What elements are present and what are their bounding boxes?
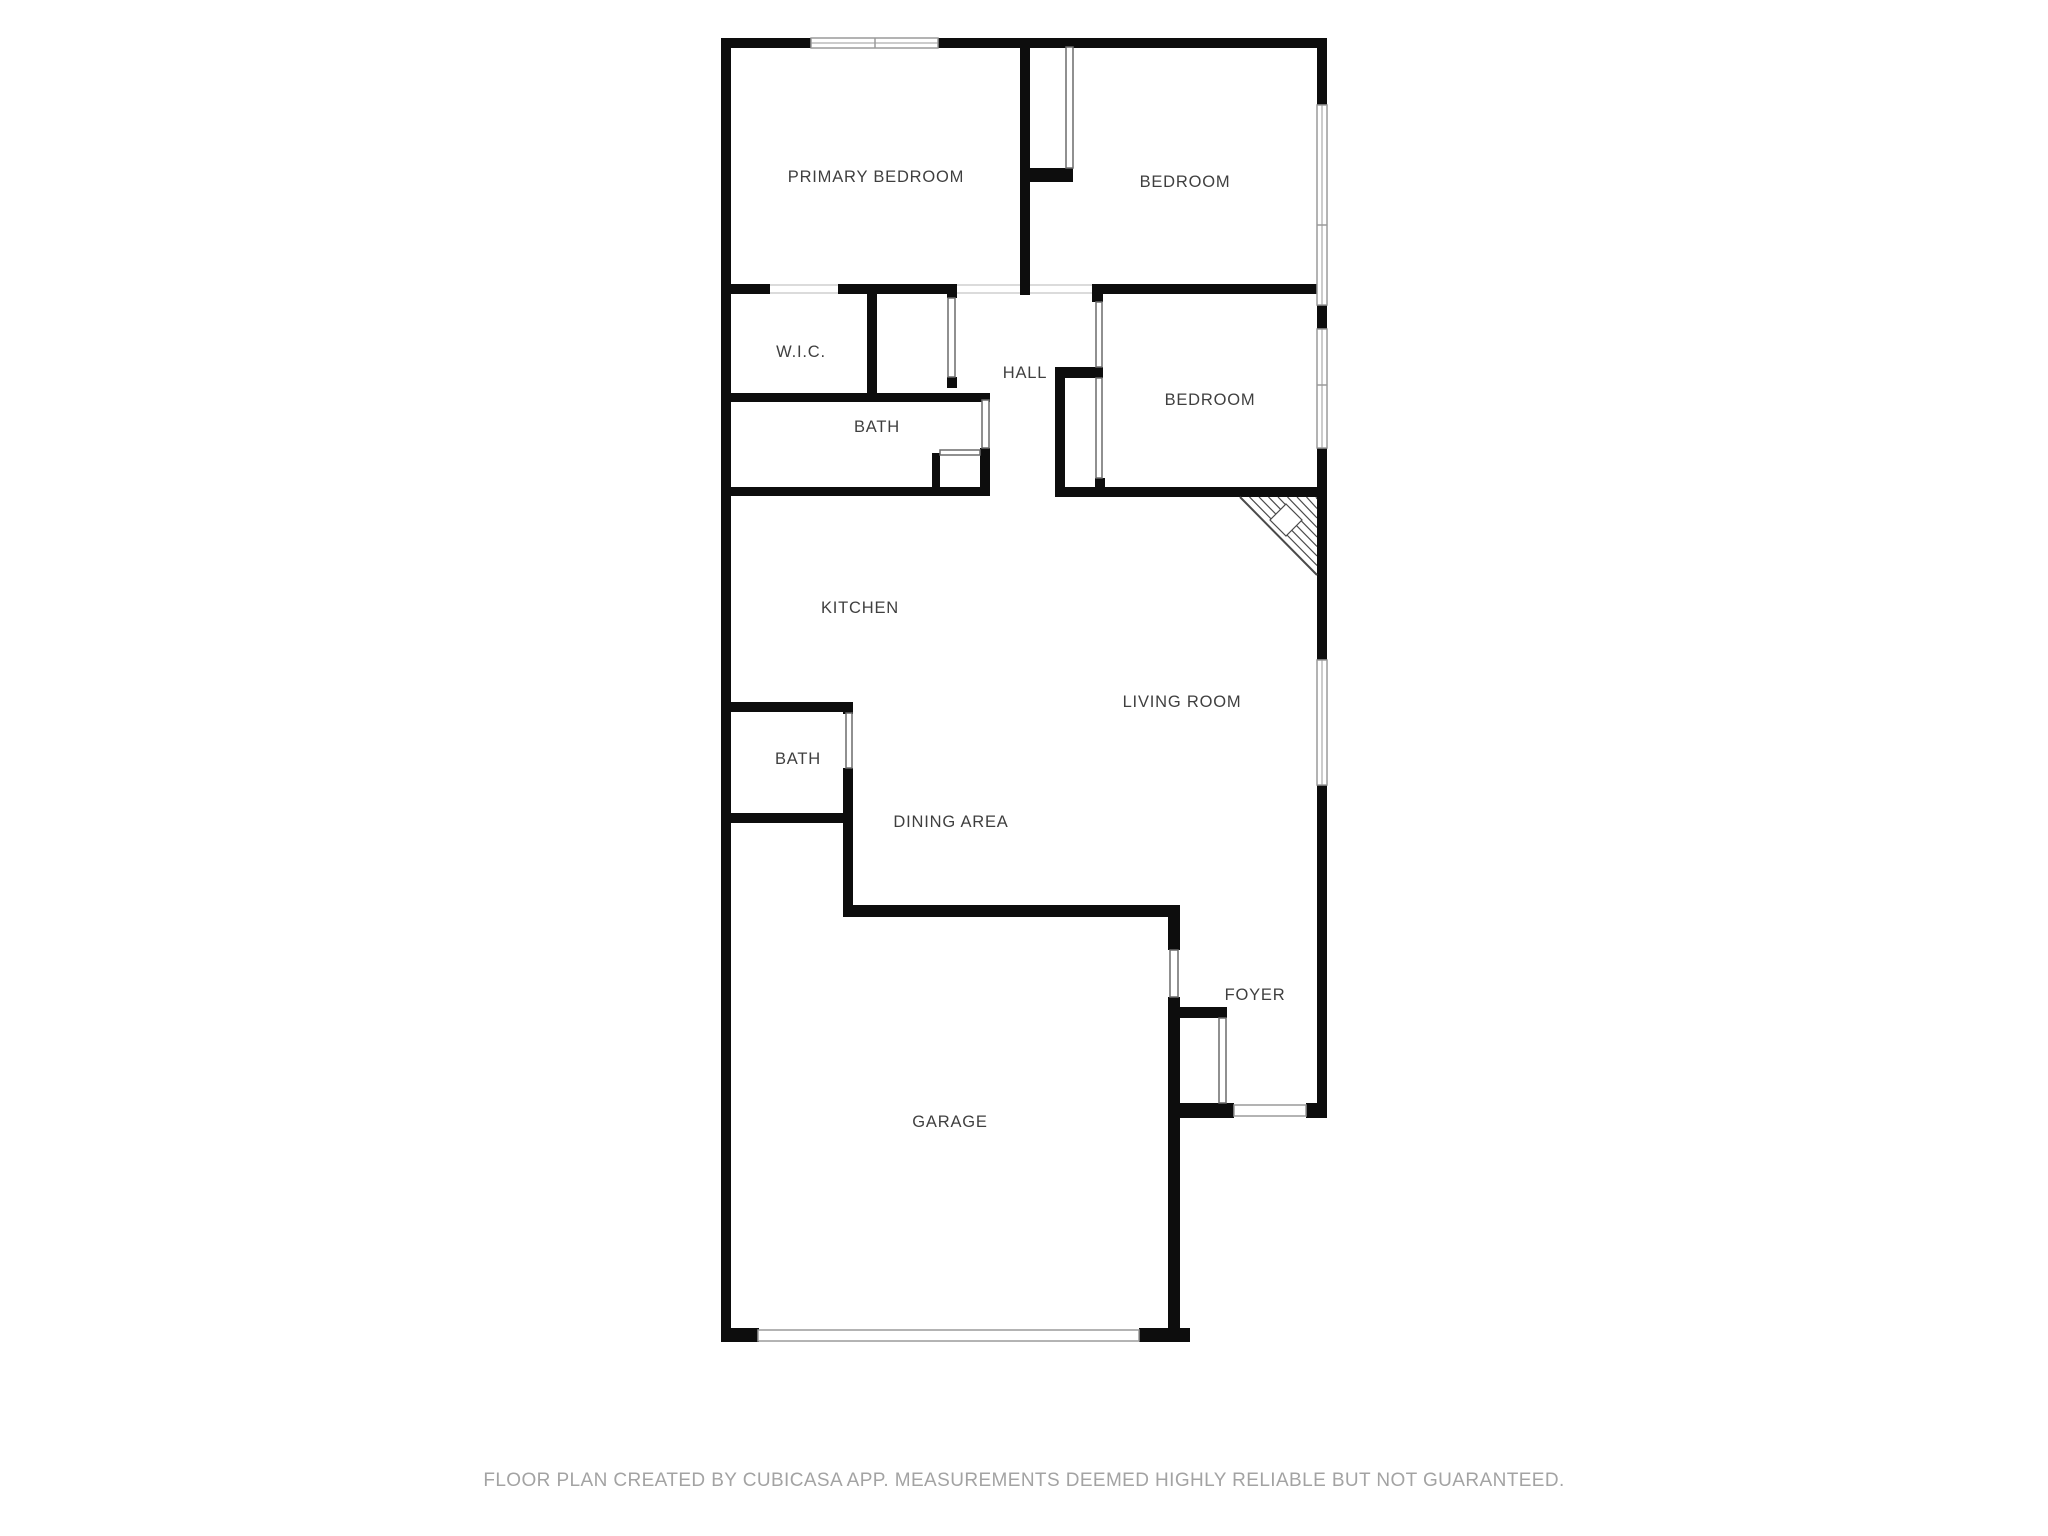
room-label-bath-lower: BATH: [775, 750, 821, 768]
room-label-foyer: FOYER: [1225, 986, 1286, 1004]
wall: [1055, 367, 1065, 497]
wall: [1317, 785, 1327, 1118]
door-leaf: [940, 450, 980, 455]
wall: [947, 377, 957, 388]
wall: [1180, 1007, 1227, 1018]
wall: [1093, 367, 1103, 378]
wall: [1139, 1328, 1190, 1342]
room-label-living-room: LIVING ROOM: [1123, 693, 1242, 711]
wall: [721, 38, 731, 1342]
room-label-wic: W.I.C.: [776, 343, 826, 361]
wall: [1092, 284, 1327, 294]
front-door: [1234, 1105, 1306, 1116]
room-label-garage: GARAGE: [912, 1113, 987, 1131]
room-label-primary-bedroom: PRIMARY BEDROOM: [788, 168, 964, 186]
wall: [932, 453, 940, 495]
wall: [721, 1328, 759, 1342]
wall: [1317, 38, 1327, 108]
wall: [721, 393, 990, 402]
door-leaf: [948, 298, 955, 377]
hatch-line: [1297, 497, 1317, 518]
wall: [1055, 487, 1327, 497]
wall: [1020, 168, 1073, 182]
wall: [1168, 997, 1180, 1342]
wall: [838, 284, 947, 294]
wall: [1306, 1103, 1327, 1118]
hatch-line: [1316, 497, 1317, 499]
wall: [867, 294, 877, 400]
footer-disclaimer: FLOOR PLAN CREATED BY CUBICASA APP. MEAS…: [0, 1470, 2048, 1492]
wall: [721, 284, 770, 294]
wall: [721, 487, 990, 496]
door-leaf: [1096, 378, 1102, 478]
room-label-hall: HALL: [1003, 364, 1047, 382]
wall: [947, 284, 957, 298]
wall: [1092, 294, 1103, 302]
door-leaf: [1219, 1018, 1226, 1103]
door-leaf: [1170, 950, 1178, 997]
wall: [938, 38, 1327, 48]
wall: [721, 38, 811, 48]
door-leaf: [846, 713, 852, 768]
floor-plan-drawing: PRIMARY BEDROOMBEDROOMW.I.C.HALLBEDROOMB…: [0, 0, 2048, 1536]
door-leaf: [982, 400, 989, 448]
wall: [843, 905, 1180, 917]
door-leaf: [1096, 302, 1102, 367]
wall: [1168, 917, 1180, 950]
wall: [1317, 448, 1327, 660]
wall: [843, 768, 853, 917]
wall: [843, 702, 853, 714]
room-label-bath-upper: BATH: [854, 418, 900, 436]
wall: [721, 813, 853, 823]
hatch-hypotenuse: [1240, 497, 1317, 575]
wall: [721, 702, 853, 712]
garage-door: [758, 1330, 1139, 1341]
door-leaf: [1066, 47, 1073, 168]
wall: [1317, 305, 1327, 329]
room-label-dining-area: DINING AREA: [893, 813, 1008, 831]
floor-plan-page: PRIMARY BEDROOMBEDROOMW.I.C.HALLBEDROOMB…: [0, 0, 2048, 1536]
hatch-line: [1307, 497, 1318, 509]
room-label-bedroom-middle: BEDROOM: [1165, 391, 1256, 409]
room-label-bedroom-top: BEDROOM: [1140, 173, 1231, 191]
room-label-kitchen: KITCHEN: [821, 599, 899, 617]
